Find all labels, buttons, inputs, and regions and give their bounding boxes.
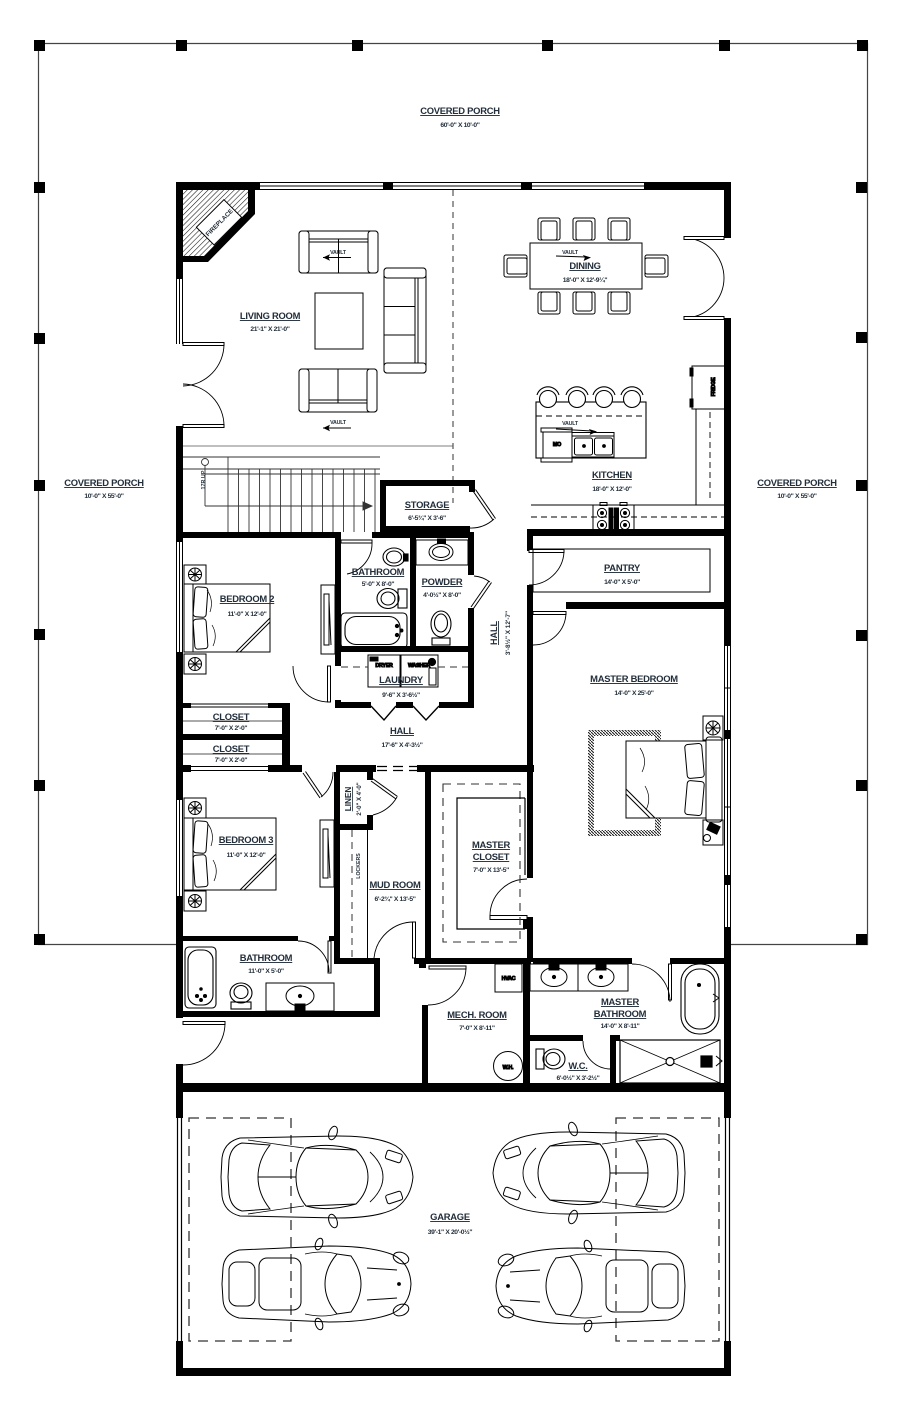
svg-text:17'-6" X 4'-3½": 17'-6" X 4'-3½" <box>381 741 422 749</box>
svg-text:7'-0" X 2'-0": 7'-0" X 2'-0" <box>215 757 248 764</box>
svg-text:4'-0½" X 8'-0": 4'-0½" X 8'-0" <box>423 591 461 599</box>
svg-text:CLOSET: CLOSET <box>213 743 250 754</box>
svg-text:PANTRY: PANTRY <box>604 562 641 573</box>
svg-text:VAULT: VAULT <box>330 250 347 256</box>
svg-text:17R UP: 17R UP <box>201 470 207 489</box>
svg-text:W.H.: W.H. <box>503 1065 514 1071</box>
svg-text:VAULT: VAULT <box>562 250 579 256</box>
svg-text:BEDROOM 3: BEDROOM 3 <box>219 834 274 845</box>
svg-text:11'-0" X 12'-0": 11'-0" X 12'-0" <box>227 852 266 859</box>
svg-text:LIVING ROOM: LIVING ROOM <box>240 310 301 321</box>
svg-text:POWDER: POWDER <box>422 576 463 587</box>
svg-text:6'-2¾" X 13'-5": 6'-2¾" X 13'-5" <box>374 895 415 903</box>
svg-text:BATHROOM: BATHROOM <box>594 1008 647 1019</box>
svg-text:COVERED PORCH: COVERED PORCH <box>757 477 837 488</box>
svg-text:DRYER: DRYER <box>375 663 393 669</box>
svg-text:MASTER: MASTER <box>472 839 511 850</box>
svg-text:MUD ROOM: MUD ROOM <box>369 879 421 890</box>
svg-text:GARAGE: GARAGE <box>430 1211 470 1222</box>
svg-text:HALL: HALL <box>390 725 415 736</box>
svg-text:7'-0" X 8'-11": 7'-0" X 8'-11" <box>459 1025 495 1032</box>
svg-text:DINING: DINING <box>569 260 600 271</box>
svg-text:7'-0" X 2'-0": 7'-0" X 2'-0" <box>215 725 248 732</box>
svg-text:11'-0" X 12'-0": 11'-0" X 12'-0" <box>228 611 267 618</box>
svg-text:21'-1" X 21'-0": 21'-1" X 21'-0" <box>250 326 289 333</box>
svg-text:6'-0½" X 3'-2½": 6'-0½" X 3'-2½" <box>557 1074 600 1082</box>
svg-text:BATHROOM: BATHROOM <box>240 952 293 963</box>
svg-text:5'-0" X 8'-0": 5'-0" X 8'-0" <box>362 581 395 588</box>
svg-text:COVERED PORCH: COVERED PORCH <box>420 105 500 116</box>
svg-text:10'-0" X 55'-0": 10'-0" X 55'-0" <box>84 493 123 500</box>
svg-text:VAULT: VAULT <box>330 420 347 426</box>
svg-text:7'-0" X 13'-5": 7'-0" X 13'-5" <box>473 867 509 874</box>
svg-text:39'-1" X 20'-0½": 39'-1" X 20'-0½" <box>428 1228 473 1236</box>
svg-text:COVERED PORCH: COVERED PORCH <box>64 477 144 488</box>
svg-text:HALL: HALL <box>489 621 499 645</box>
svg-text:CLOSET: CLOSET <box>213 711 250 722</box>
svg-text:18'-0" X 12'-0": 18'-0" X 12'-0" <box>592 486 631 493</box>
svg-text:MECH. ROOM: MECH. ROOM <box>447 1009 507 1020</box>
svg-text:HVAC: HVAC <box>502 976 516 982</box>
svg-text:KITCHEN: KITCHEN <box>592 469 632 480</box>
svg-text:LOCKERS: LOCKERS <box>356 853 362 879</box>
svg-text:14'-0" X 25'-0": 14'-0" X 25'-0" <box>614 690 653 697</box>
svg-text:WASHER: WASHER <box>408 663 430 669</box>
svg-text:MASTER BEDROOM: MASTER BEDROOM <box>590 673 678 684</box>
svg-text:2'-0" X 4'-0": 2'-0" X 4'-0" <box>357 782 363 815</box>
svg-text:MASTER: MASTER <box>601 996 640 1007</box>
svg-text:10'-0" X 55'-0": 10'-0" X 55'-0" <box>777 493 816 500</box>
svg-text:9'-6" X 3'-6½": 9'-6" X 3'-6½" <box>382 691 420 699</box>
svg-text:VAULT: VAULT <box>562 421 579 427</box>
svg-text:LAUNDRY: LAUNDRY <box>379 674 424 685</box>
svg-text:3'-8½" X 12'-7": 3'-8½" X 12'-7" <box>504 611 512 655</box>
svg-text:MO: MO <box>553 442 561 448</box>
svg-text:18'-0" X 12'-9¼": 18'-0" X 12'-9¼" <box>563 276 608 284</box>
svg-text:BEDROOM 2: BEDROOM 2 <box>220 593 275 604</box>
svg-text:60'-0" X 10'-0": 60'-0" X 10'-0" <box>440 122 479 129</box>
svg-text:14'-0" X 5'-0": 14'-0" X 5'-0" <box>604 579 640 586</box>
svg-text:6'-5¾" X 3'-6": 6'-5¾" X 3'-6" <box>408 514 446 522</box>
svg-text:11'-0" X 5'-0": 11'-0" X 5'-0" <box>248 968 284 975</box>
svg-text:BATHROOM: BATHROOM <box>352 566 405 577</box>
svg-text:W.C.: W.C. <box>568 1060 587 1071</box>
svg-text:14'-0" X 8'-11": 14'-0" X 8'-11" <box>601 1023 640 1030</box>
svg-text:CLOSET: CLOSET <box>473 851 510 862</box>
svg-text:LINEN: LINEN <box>344 787 353 812</box>
svg-text:STORAGE: STORAGE <box>405 499 449 510</box>
svg-text:FRIDGE: FRIDGE <box>711 377 717 396</box>
